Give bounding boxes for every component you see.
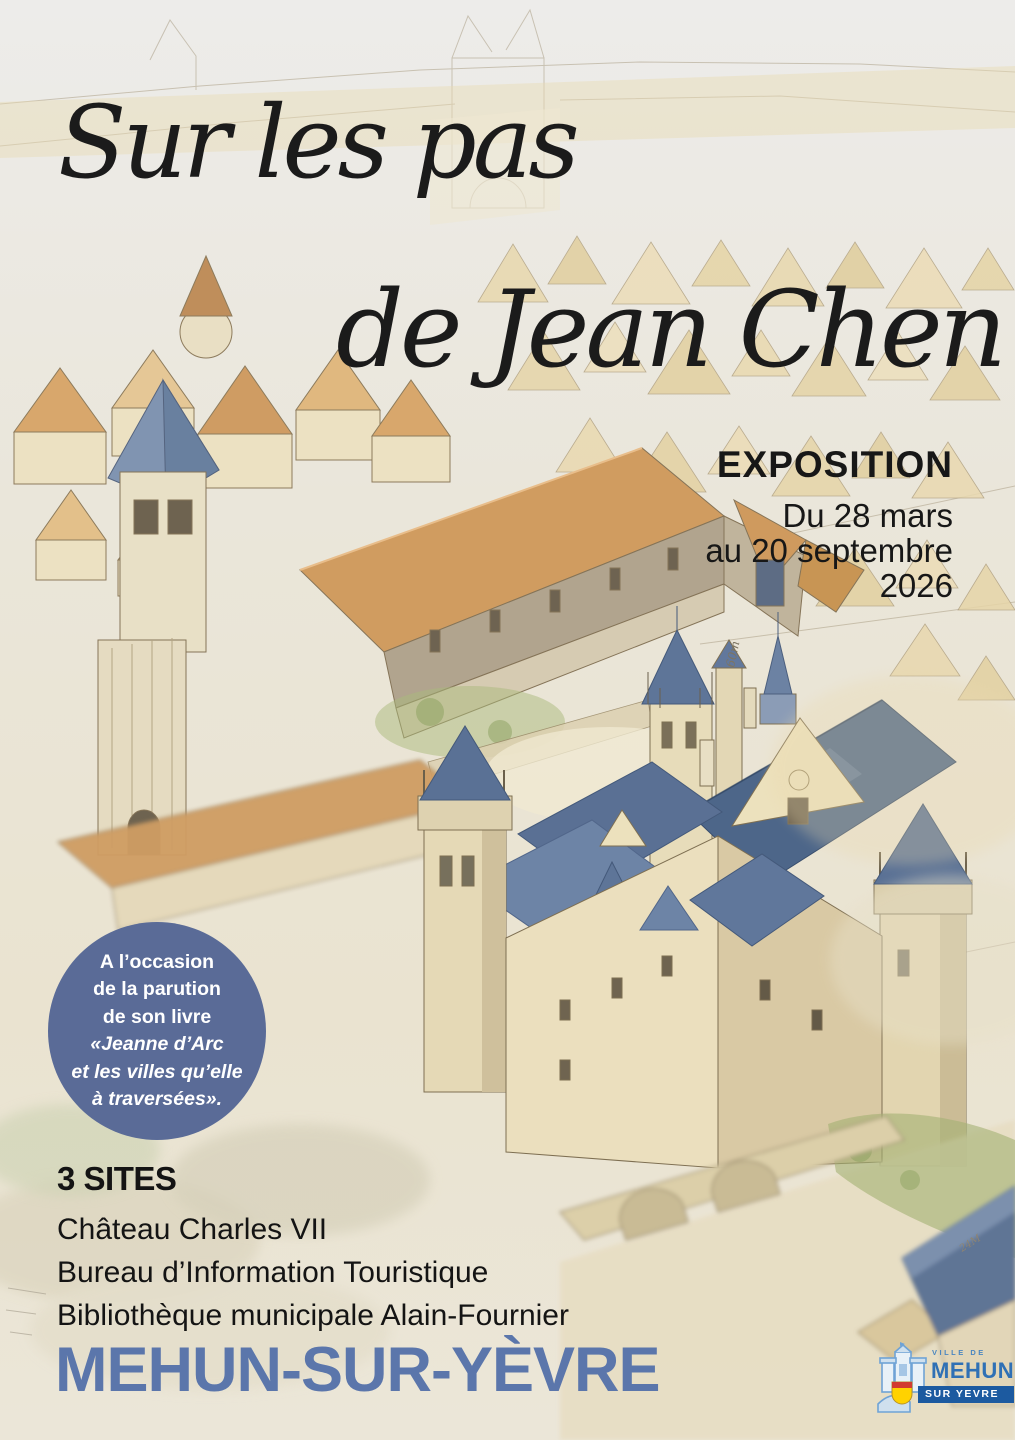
event-date-line1: Du 28 mars — [705, 498, 953, 533]
sites-heading: 3 SITES — [57, 1160, 569, 1198]
poster-title-line1: Sur les pas — [58, 84, 576, 201]
site-bibliotheque: Bibliothèque municipale Alain-Fournier — [57, 1294, 569, 1337]
site-chateau: Château Charles VII — [57, 1208, 569, 1251]
moat-shrub — [900, 1170, 920, 1190]
badge-line2: de la parution — [93, 976, 221, 1004]
badge-line3: de son livre — [103, 1004, 211, 1032]
badge-line5: et les villes qu’elle — [71, 1059, 242, 1087]
event-date-line3: 2026 — [705, 568, 953, 603]
poster-title-line2: de Jean Chen — [336, 268, 1003, 391]
city-name: MEHUN-SUR-YÈVRE — [55, 1334, 660, 1406]
logo-mehun: MEHUN — [931, 1358, 1014, 1384]
city-logo: VILLE DE MEHUN SUR YEVRE — [876, 1340, 1012, 1424]
shrub — [416, 698, 444, 726]
logo-ville-de: VILLE DE — [932, 1348, 1014, 1357]
badge-line4: «Jeanne d’Arc — [90, 1031, 223, 1059]
book-announcement-badge: A l’occasion de la parution de son livre… — [48, 922, 266, 1140]
site-bureau: Bureau d’Information Touristique — [57, 1251, 569, 1294]
badge-line6: à traversées». — [92, 1086, 222, 1114]
logo-sur-yevre-banner: SUR YEVRE — [918, 1386, 1014, 1403]
sites-block: 3 SITES Château Charles VII Bureau d’Inf… — [57, 1160, 569, 1337]
event-date-line2: au 20 septembre — [705, 533, 953, 568]
castle-crest-icon — [876, 1340, 932, 1420]
event-kind-label: EXPOSITION — [705, 444, 953, 486]
event-block: EXPOSITION Du 28 mars au 20 septembre 20… — [705, 444, 953, 603]
badge-line1: A l’occasion — [100, 949, 214, 977]
logo-text: VILLE DE MEHUN SUR YEVRE — [926, 1344, 1014, 1403]
poster-root: 60m 24M Sur les pas de Jean Chen EXPOSIT… — [0, 0, 1015, 1440]
